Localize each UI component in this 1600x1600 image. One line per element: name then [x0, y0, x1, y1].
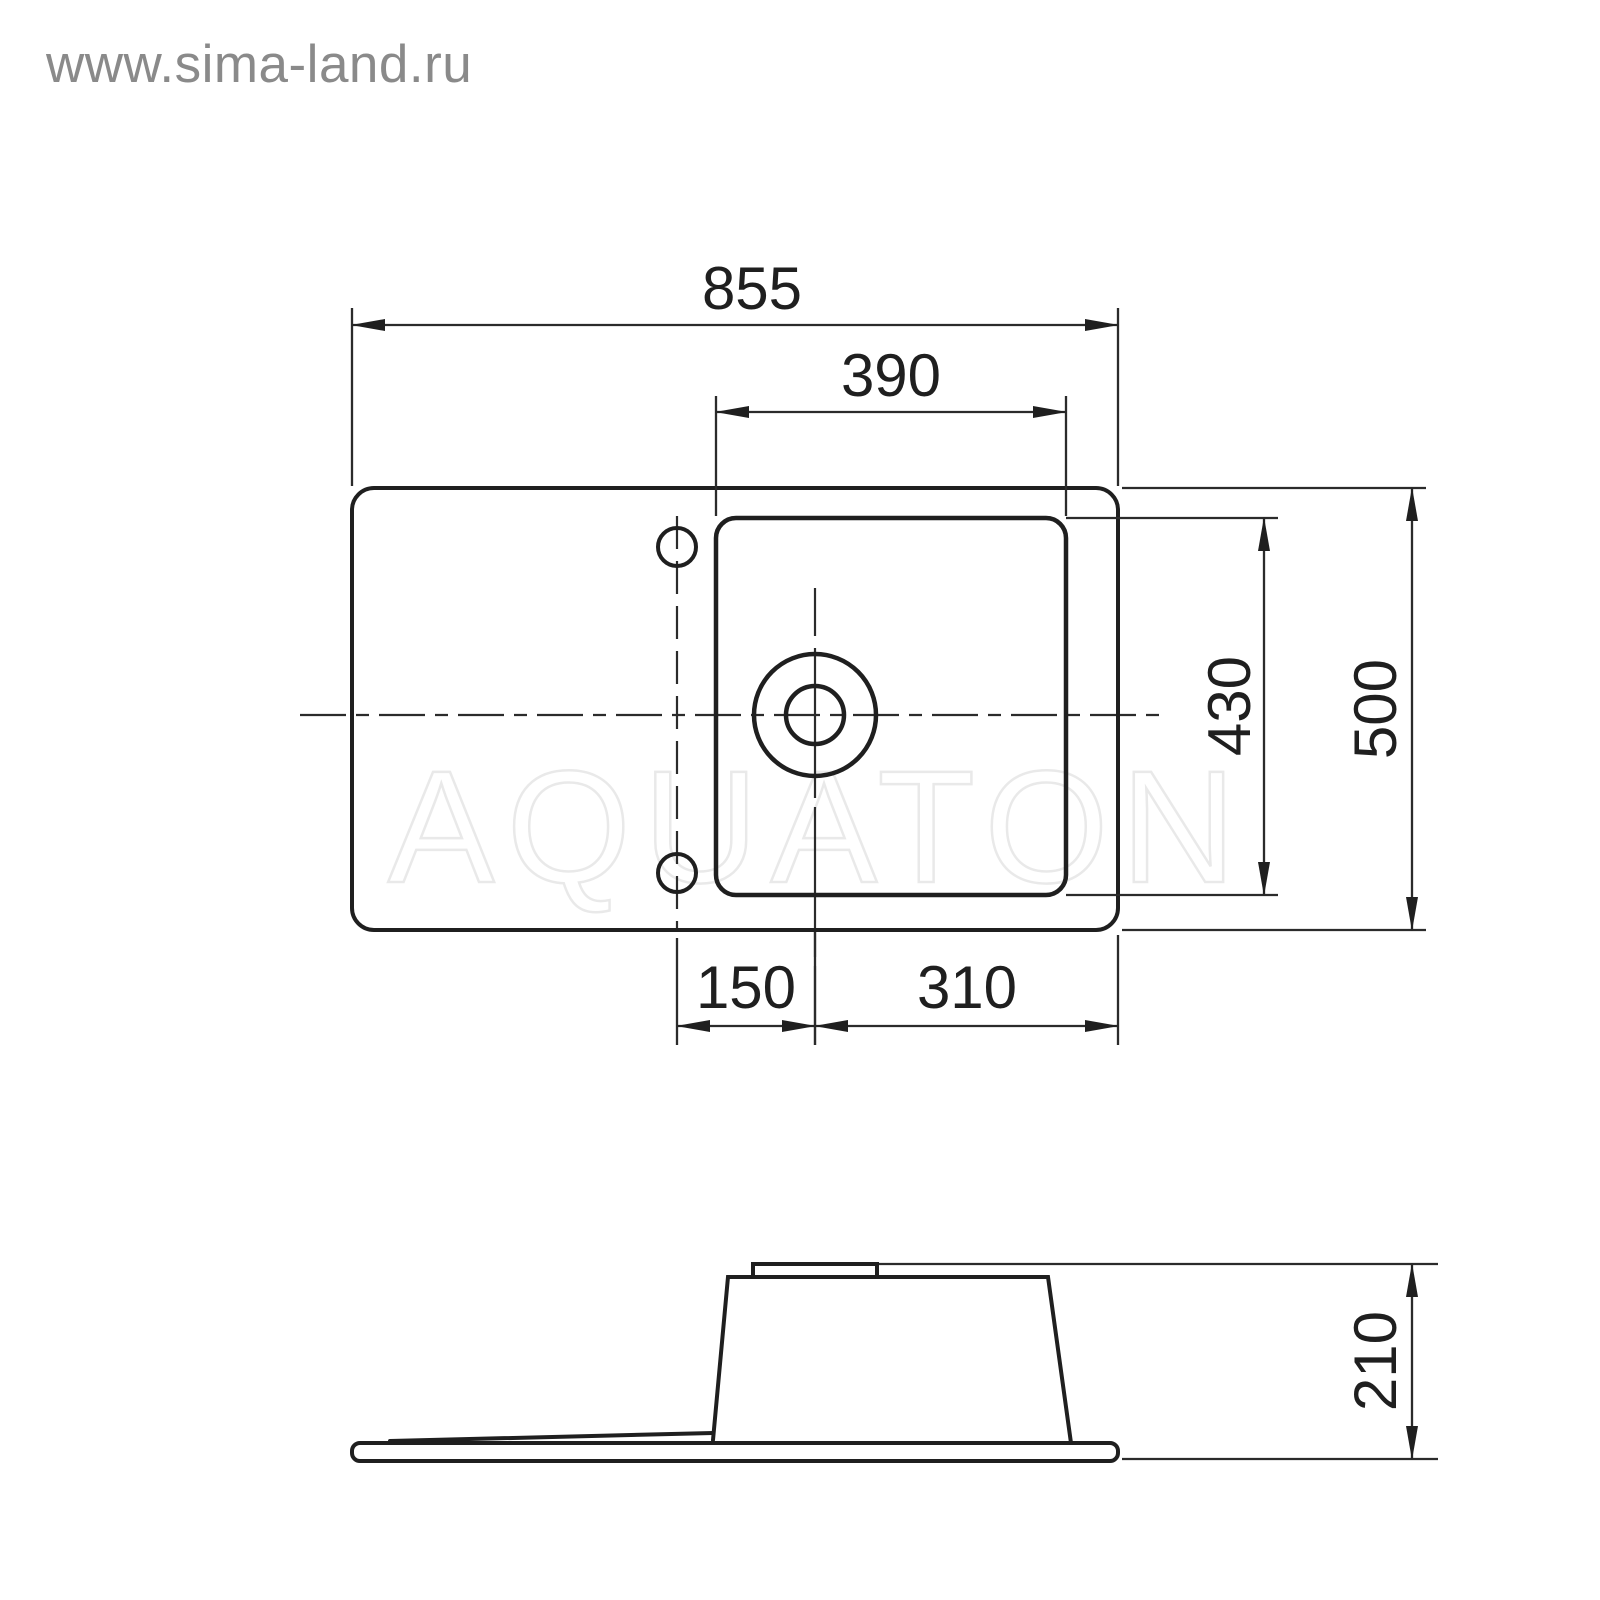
- top-view: 855 390 430 500 150 310: [300, 255, 1426, 1045]
- side-base-plate: [352, 1443, 1118, 1461]
- technical-drawing: AQUATON 855 390: [0, 0, 1600, 1600]
- side-view: 210: [352, 1264, 1438, 1461]
- page: www.sima-land.ru AQUATON: [0, 0, 1600, 1600]
- dim-210-label: 210: [1342, 1311, 1409, 1411]
- dim-430-label: 430: [1196, 656, 1263, 756]
- side-drainboard-slope: [390, 1433, 713, 1441]
- dim-500-label: 500: [1342, 659, 1409, 759]
- side-bowl-profile: [713, 1277, 1071, 1443]
- dim-390-label: 390: [841, 342, 941, 409]
- dim-310-label: 310: [917, 954, 1017, 1021]
- dim-855-label: 855: [702, 255, 802, 322]
- dim-150-label: 150: [696, 954, 796, 1021]
